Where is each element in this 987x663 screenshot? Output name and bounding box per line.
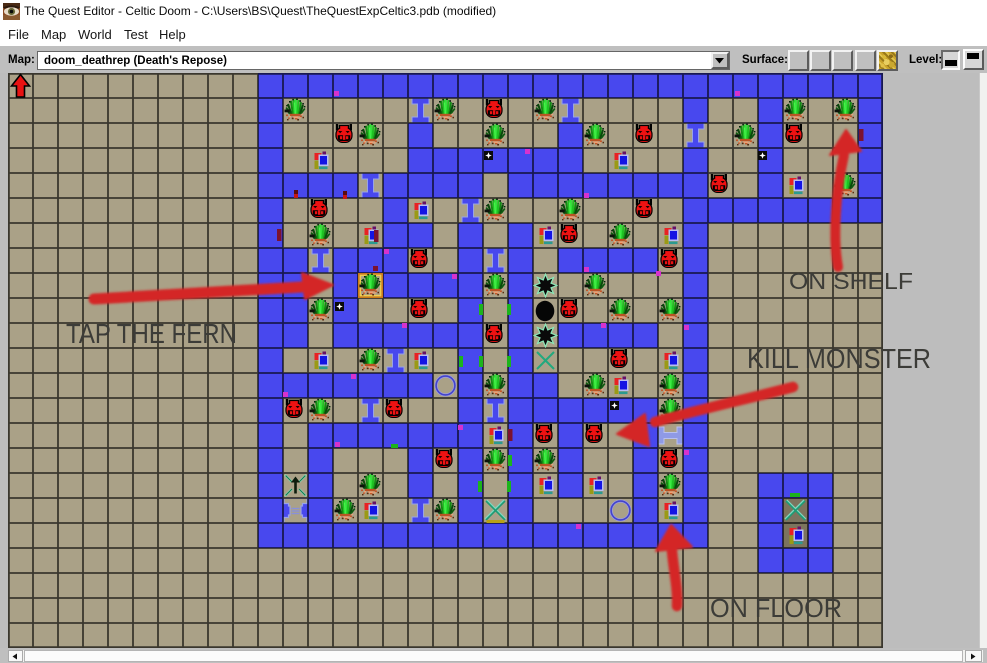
svg-text:KILL MONSTER: KILL MONSTER <box>747 343 931 374</box>
svg-text:TAP THE FERN: TAP THE FERN <box>66 318 237 349</box>
svg-text:ON SHELF: ON SHELF <box>789 268 913 294</box>
svg-text:ON FLOOR: ON FLOOR <box>710 593 842 623</box>
